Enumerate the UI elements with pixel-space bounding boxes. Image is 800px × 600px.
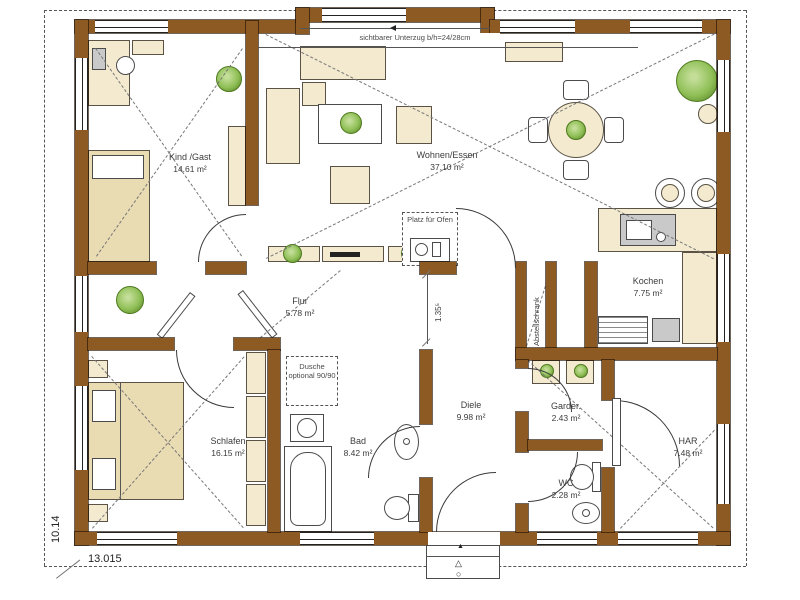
wall-segment	[602, 468, 614, 532]
entrance-marker-circle-icon: ○	[456, 569, 461, 579]
door-arc	[176, 350, 234, 408]
dimension-flur-opening: 1.35⁵	[434, 303, 443, 322]
window	[630, 20, 702, 33]
sofa	[300, 46, 386, 80]
room-label-kochen: Kochen 7.75 m²	[633, 276, 664, 299]
media-device	[330, 252, 360, 257]
armchair	[396, 106, 432, 144]
washing-machine-drum	[297, 418, 317, 438]
room-label-wc: WC 2.28 m²	[552, 478, 581, 501]
window	[618, 532, 698, 545]
door-leaf	[237, 290, 277, 338]
entrance-marker-triangle-icon: △	[455, 558, 462, 569]
wall-segment	[206, 262, 246, 274]
stool	[698, 104, 718, 124]
beam-note: sichtbarer Unterzug b/h=24/28cm	[330, 33, 500, 42]
window	[97, 532, 177, 545]
wall-segment	[234, 338, 280, 350]
desk-chair	[116, 56, 135, 75]
wardrobe	[246, 484, 266, 526]
toilet-bowl	[384, 496, 410, 520]
door-arc	[456, 208, 516, 268]
wardrobe	[246, 352, 266, 394]
wall-segment	[546, 262, 556, 358]
room-label-bad: Bad 8.42 m²	[344, 436, 373, 459]
window	[300, 532, 374, 545]
wall-segment	[516, 348, 717, 360]
wardrobe	[246, 440, 266, 482]
wall-segment	[246, 21, 258, 205]
bar-stool-seat	[697, 184, 715, 202]
bed-pillow	[92, 458, 116, 490]
wall-segment	[296, 8, 309, 34]
wall-segment	[516, 504, 528, 532]
wardrobe	[246, 396, 266, 438]
room-label-wohnen-essen: Wohnen/Essen 37.10 m²	[417, 150, 478, 173]
beam-line	[258, 47, 638, 48]
oven-burner	[415, 243, 428, 256]
bar-stool-seat	[661, 184, 679, 202]
door-arc	[368, 426, 420, 478]
plant-icon	[574, 364, 588, 378]
floor-plan: Platz für Ofen Dusche optional 90/90	[0, 0, 800, 600]
wall-segment	[528, 440, 602, 450]
oven-door	[432, 242, 441, 257]
wardrobe	[228, 126, 246, 206]
plant-icon	[340, 112, 362, 134]
room-label-abstellschrank: Abstellschrank	[532, 297, 541, 346]
entrance-steps	[426, 545, 500, 579]
room-label-diele: Diele 9.98 m²	[457, 400, 486, 423]
opening-line	[427, 274, 428, 344]
plant-icon	[676, 60, 718, 102]
dimension-total-width: 13.015	[88, 553, 122, 565]
plant-icon	[566, 120, 586, 140]
wall-segment	[516, 412, 528, 452]
roof-outline	[44, 566, 746, 567]
room-label-har: HAR 7.48 m²	[674, 436, 703, 459]
shower-optional-label: Dusche optional 90/90	[288, 362, 336, 381]
kitchen-appliance	[652, 318, 680, 342]
window	[75, 386, 88, 470]
armchair	[330, 166, 370, 204]
window	[500, 20, 575, 33]
room-label-flur: Flur 5.78 m²	[286, 296, 315, 319]
window	[95, 20, 168, 33]
window	[717, 254, 730, 342]
bathtub-inner	[290, 452, 326, 526]
bed-split-line	[120, 383, 121, 499]
entrance-arrow-icon: ▲	[457, 543, 464, 550]
window	[717, 424, 730, 504]
kitchen-sink-basin	[626, 220, 652, 240]
dimension-tick	[56, 560, 80, 579]
wall-segment	[88, 338, 174, 350]
plant-icon	[116, 286, 144, 314]
dimension-total-height: 10.14	[50, 515, 62, 543]
dining-chair	[563, 160, 589, 180]
dining-sideboard	[505, 42, 563, 62]
wall-segment	[268, 350, 280, 532]
window	[75, 58, 88, 130]
shelf	[132, 40, 164, 55]
wall-segment	[420, 350, 432, 424]
room-label-kind-gast: Kind /Gast 14.61 m²	[169, 152, 211, 175]
sofa	[266, 88, 300, 164]
wall-segment	[420, 478, 432, 532]
roof-outline	[44, 10, 45, 566]
dishwasher	[598, 316, 648, 344]
oven-place-label: Platz für Ofen	[404, 215, 456, 224]
bed-pillow	[92, 390, 116, 422]
roof-outline	[746, 10, 747, 566]
window	[717, 60, 730, 132]
window	[537, 532, 597, 545]
wall-segment	[420, 262, 456, 274]
bed-pillow	[92, 155, 144, 179]
room-label-garderobe: Garder. 2.43 m²	[551, 401, 581, 424]
door-leaf	[612, 398, 621, 466]
door-arc	[436, 472, 496, 532]
room-label-schlafen: Schlafen 16.15 m²	[210, 436, 245, 459]
door-leaf	[157, 292, 196, 339]
door-arc	[198, 214, 246, 262]
window	[75, 276, 88, 332]
wc-sink-drain	[582, 509, 590, 517]
kitchen-counter	[682, 252, 717, 344]
window	[322, 8, 406, 22]
wall-segment	[585, 262, 597, 358]
dining-chair	[604, 117, 624, 143]
wall-segment	[602, 360, 614, 400]
beam-arrow-icon	[390, 25, 396, 31]
sofa-cushion	[302, 82, 326, 106]
wall-segment	[88, 262, 156, 274]
wall-segment	[516, 360, 528, 368]
entrance-opening	[428, 532, 500, 545]
wall-segment	[516, 262, 526, 358]
entrance-step-line	[426, 556, 500, 557]
door-arc	[614, 400, 680, 466]
